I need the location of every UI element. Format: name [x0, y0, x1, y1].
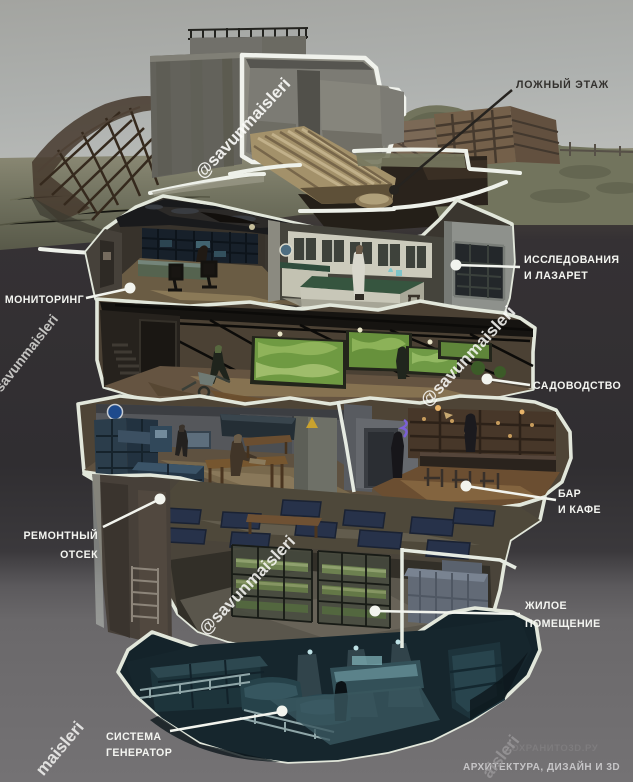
svg-text:ОТСЕК: ОТСЕК [60, 549, 98, 561]
svg-text:САДОВОДСТВО: САДОВОДСТВО [533, 380, 621, 392]
svg-text:ЛОЖНЫЙ ЭТАЖ: ЛОЖНЫЙ ЭТАЖ [516, 78, 609, 91]
svg-text:И КАФЕ: И КАФЕ [558, 504, 601, 516]
svg-text:РЕМОНТНЫЙ: РЕМОНТНЫЙ [23, 529, 98, 542]
svg-text:ЖИЛОЕ: ЖИЛОЕ [524, 600, 567, 612]
svg-text:СИСТЕМА: СИСТЕМА [106, 731, 161, 743]
svg-text:МОНИТОРИНГ: МОНИТОРИНГ [5, 294, 84, 306]
svg-text:ГЕНЕРАТОР: ГЕНЕРАТОР [106, 747, 172, 759]
svg-text:ПОМЕЩЕНИЕ: ПОМЕЩЕНИЕ [525, 618, 601, 630]
svg-text:И ЛАЗАРЕТ: И ЛАЗАРЕТ [524, 270, 588, 282]
svg-text:ИССЛЕДОВАНИЯ: ИССЛЕДОВАНИЯ [524, 254, 619, 266]
svg-text:БАР: БАР [558, 488, 581, 500]
